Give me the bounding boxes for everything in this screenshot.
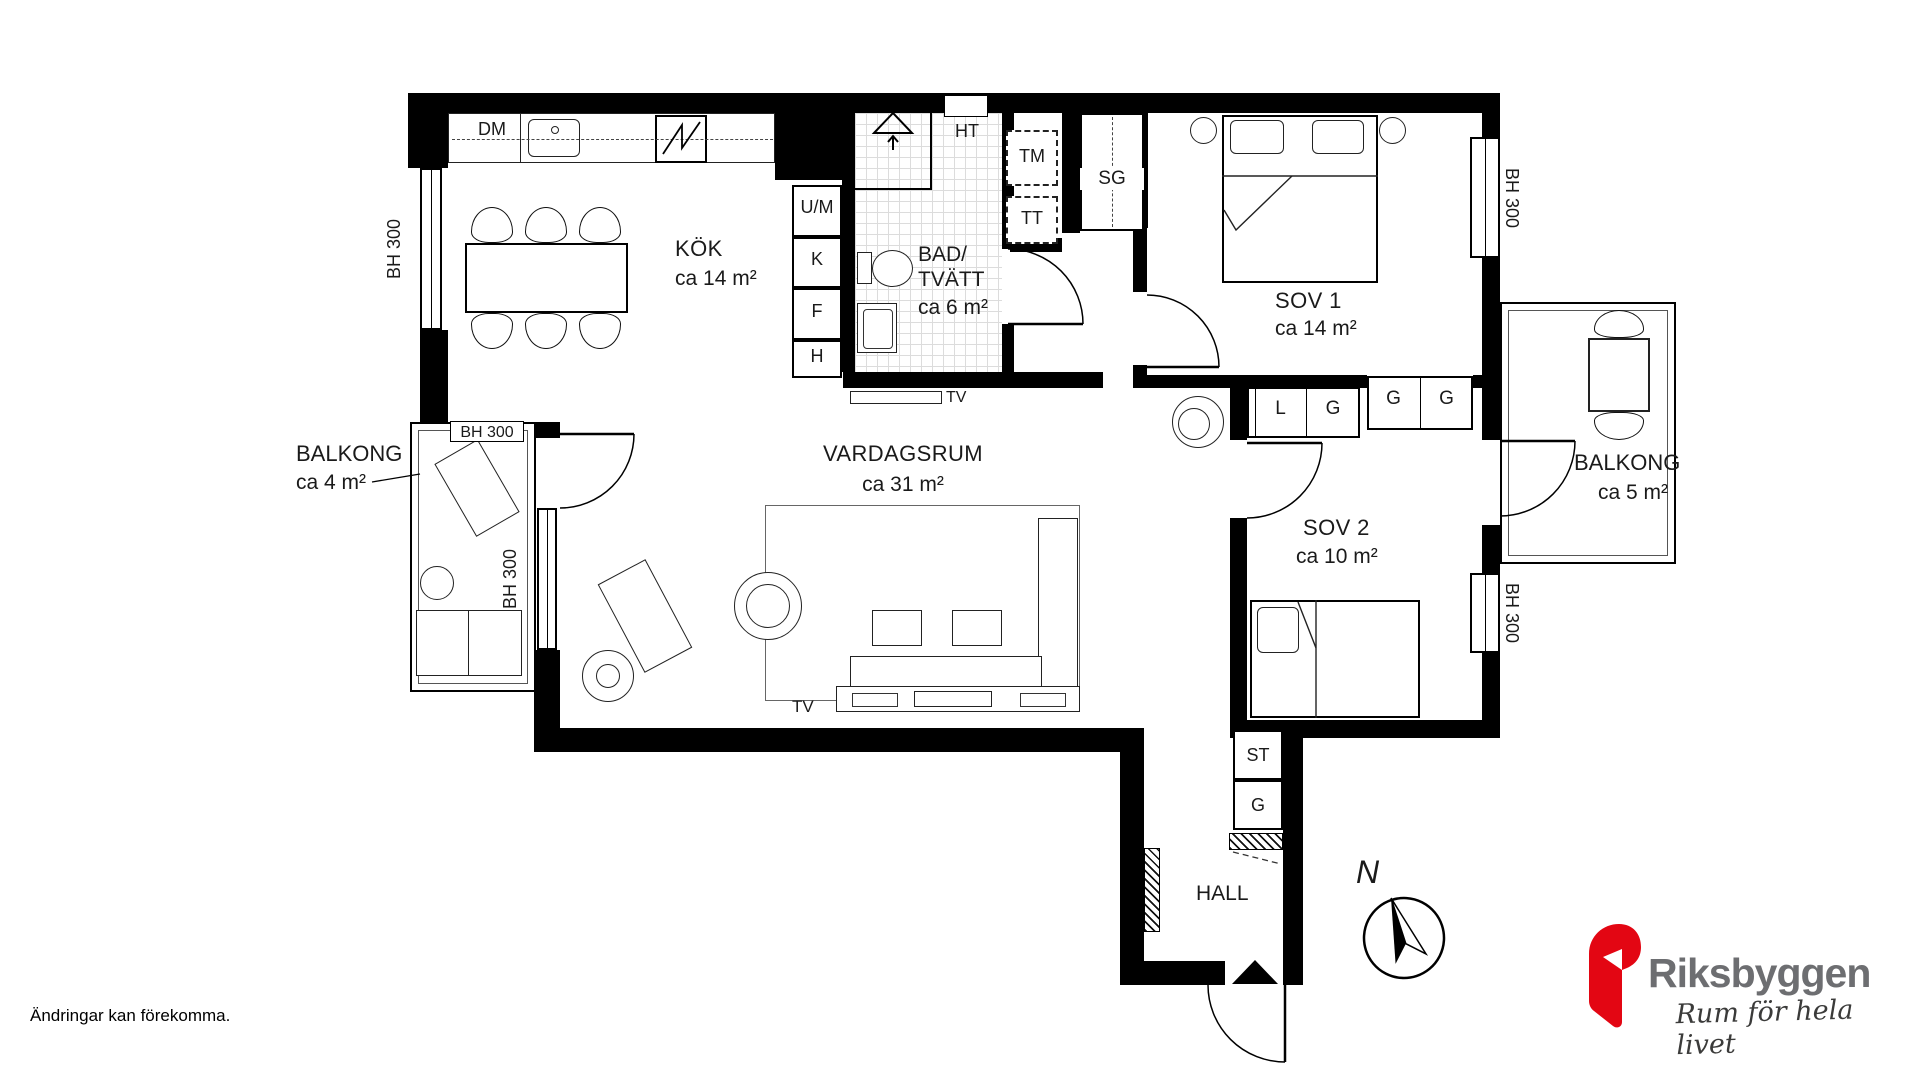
- room-area-vardagsrum: ca 31 m²: [778, 473, 1028, 497]
- sov1-nightstand-left: [1190, 117, 1217, 144]
- tv-bench-small: [850, 391, 942, 404]
- balcony-right-table: [1588, 338, 1650, 412]
- dining-table: [465, 243, 628, 313]
- window-height-label: BH 300: [1501, 143, 1523, 253]
- armchair-round-inner: [746, 584, 790, 628]
- tv-label-2: TV: [792, 697, 814, 717]
- dining-chair: [471, 313, 513, 349]
- room-area-balkong-left: ca 4 m²: [296, 471, 366, 495]
- wall-left-lower: [420, 330, 448, 422]
- wall-west-stub-a: [536, 422, 560, 434]
- media-bench-drawer-2: [1020, 693, 1066, 707]
- window-height-label: BH 300: [499, 524, 521, 634]
- wall-livingroom-south: [534, 728, 1144, 752]
- wall-east-c: [1482, 525, 1500, 573]
- hall-radiator: [1144, 848, 1160, 932]
- room-label-balkong-left: BALKONG: [296, 441, 402, 467]
- riksbyggen-logo-text: Riksbyggen: [1648, 950, 1870, 997]
- wall-bath-east-lower: [1002, 324, 1014, 372]
- sov1-nightstand-right: [1379, 117, 1406, 144]
- door-sov1: [1147, 295, 1219, 367]
- shower-enclosure: [855, 113, 932, 190]
- room-area-balkong-right: ca 5 m²: [1598, 481, 1668, 505]
- coffee-table-1: [872, 610, 922, 646]
- door-balcony-left: [560, 434, 634, 508]
- cabinet-um-label: U/M: [792, 197, 842, 218]
- dishwasher-label: DM: [470, 119, 514, 140]
- room-label-vardagsrum: VARDAGSRUM: [778, 441, 1028, 467]
- kitchen-counter-divider: [520, 113, 521, 163]
- dining-chair: [525, 207, 567, 243]
- closet-g-label: G: [1306, 398, 1360, 420]
- wall-hall-west: [1120, 740, 1144, 985]
- door-bathroom: [1008, 249, 1083, 324]
- door-sov2: [1247, 443, 1322, 518]
- sov2-pillow: [1257, 607, 1299, 653]
- wall-west-stub-b: [536, 650, 560, 692]
- entrance-arrow: [1232, 960, 1278, 984]
- riksbyggen-logo-icon: [1586, 922, 1644, 1032]
- side-table-round-inner: [1178, 408, 1210, 440]
- room-area-sov2: ca 10 m²: [1296, 545, 1378, 569]
- room-label-sov1: SOV 1: [1275, 288, 1342, 314]
- sov1-pillow-1: [1230, 120, 1284, 154]
- wall-entry-east: [1285, 961, 1303, 985]
- hatch-ht: [944, 95, 988, 117]
- ht-label: HT: [944, 121, 990, 142]
- wall-east-a: [1482, 93, 1500, 137]
- north-letter: N: [1356, 854, 1379, 891]
- closet-g-hall-label: G: [1233, 795, 1283, 816]
- window-height-label: BH 300: [383, 194, 405, 304]
- room-label-sov2: SOV 2: [1303, 515, 1370, 541]
- room-label-balkong-right: BALKONG: [1574, 450, 1680, 476]
- room-area-bad: ca 6 m²: [918, 296, 988, 320]
- window-height-label: BH 300: [450, 421, 524, 442]
- room-label-hall: HALL: [1196, 882, 1249, 906]
- wall-sov2-west-lower: [1230, 518, 1247, 720]
- dining-chair: [525, 313, 567, 349]
- bathroom-sink-basin: [863, 309, 893, 349]
- closet-st-label: ST: [1233, 745, 1283, 766]
- room-area-sov1: ca 14 m²: [1275, 317, 1357, 341]
- room-label-bad-1: BAD/: [918, 243, 967, 267]
- wall-hall-east: [1283, 725, 1303, 985]
- toilet-bowl: [872, 250, 913, 287]
- kitchen-sink: [528, 119, 580, 157]
- hall-shoe-rack: [1229, 833, 1283, 850]
- wall-east-b: [1482, 258, 1500, 440]
- wall-sov1-west-lower: [1133, 365, 1147, 388]
- media-bench-drawer-1: [852, 693, 898, 707]
- wall-topleft-corner: [408, 93, 448, 168]
- dining-chair: [579, 207, 621, 243]
- kitchen-faucet: [551, 126, 559, 134]
- wall-kitchen-chunk: [775, 113, 843, 180]
- tv-label-1: TV: [946, 389, 966, 407]
- tm-label: TM: [1006, 146, 1058, 167]
- closet-g-label: G: [1367, 388, 1420, 410]
- cabinet-k-label: K: [792, 249, 842, 270]
- north-compass-icon: [1353, 886, 1454, 989]
- tt-label: TT: [1006, 208, 1058, 229]
- room-area-kok: ca 14 m²: [675, 267, 757, 291]
- hall-dashed-line: [1233, 852, 1281, 864]
- cabinet-h-label: H: [792, 346, 842, 367]
- coffee-table-2: [952, 610, 1002, 646]
- disclaimer-text: Ändringar kan förekomma.: [30, 1006, 230, 1026]
- wall-kitchen-bath: [842, 113, 855, 372]
- dining-chair: [471, 207, 513, 243]
- tv-set: [914, 691, 992, 707]
- floor-plant-inner: [596, 664, 620, 688]
- wall-sov1-west-upper: [1133, 228, 1147, 292]
- cabinet-f-label: F: [792, 301, 842, 322]
- door-entrance: [1208, 985, 1285, 1062]
- sofa-vertical: [1038, 518, 1078, 698]
- sg-label: SG: [1080, 168, 1144, 190]
- closet-l-label: L: [1255, 398, 1306, 420]
- sov1-pillow-2: [1312, 120, 1364, 154]
- window-sov2-east: [1470, 573, 1500, 653]
- dining-chair: [579, 313, 621, 349]
- balcony-sofa-divider: [468, 610, 469, 676]
- wall-east-d: [1482, 653, 1500, 720]
- closet-g-label: G: [1420, 388, 1473, 410]
- window-livingroom-west: [537, 508, 557, 650]
- toilet-tank: [857, 252, 872, 284]
- window-sov1-east: [1470, 137, 1500, 258]
- wall-sov2-west-upper: [1230, 388, 1247, 440]
- balcony-round-table: [420, 566, 454, 600]
- room-label-bad-2: TVÄTT: [918, 268, 985, 292]
- window-kitchen-west: [420, 168, 442, 330]
- wall-niche-sg: [1062, 113, 1080, 233]
- window-height-label: BH 300: [1501, 558, 1523, 668]
- wall-entry-west: [1120, 961, 1225, 985]
- floorplan-canvas: DM KÖK ca 14 m² U/M K F H HT BAD/ TVÄTT …: [0, 0, 1920, 1080]
- riksbyggen-tagline: Rum för hela livet: [1675, 993, 1920, 1061]
- room-label-kok: KÖK: [675, 236, 723, 262]
- wall-bath-south: [843, 372, 1103, 388]
